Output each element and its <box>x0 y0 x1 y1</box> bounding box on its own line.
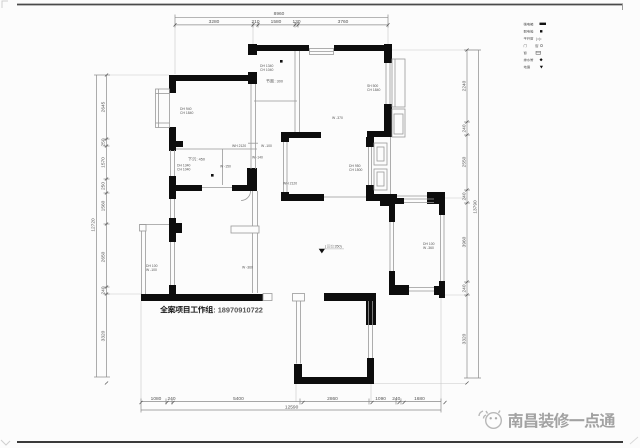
svg-text:CH 1840: CH 1840 <box>180 111 193 115</box>
svg-text:240: 240 <box>462 192 468 200</box>
svg-text:CH 1040: CH 1040 <box>177 168 190 172</box>
svg-text:250: 250 <box>101 182 107 190</box>
svg-text:1560: 1560 <box>101 200 107 211</box>
svg-text:3320: 3320 <box>462 333 468 344</box>
svg-text:2240: 2240 <box>462 80 468 91</box>
svg-text:W -370: W -370 <box>332 116 343 120</box>
svg-text:1090: 1090 <box>375 396 386 402</box>
svg-text:3320: 3320 <box>101 330 107 341</box>
svg-text:W -100: W -100 <box>261 144 272 148</box>
svg-text:12590: 12590 <box>285 404 299 410</box>
svg-text:1580: 1580 <box>271 19 282 25</box>
svg-text:3760: 3760 <box>338 19 349 25</box>
svg-text:1680: 1680 <box>414 396 425 402</box>
svg-text:8960: 8960 <box>274 11 285 17</box>
svg-text:WH 2120: WH 2120 <box>232 144 246 148</box>
svg-text:3960: 3960 <box>462 236 468 247</box>
svg-text:2860: 2860 <box>327 396 338 402</box>
svg-text:WH 2120: WH 2120 <box>283 182 297 186</box>
svg-text:: 300: : 300 <box>275 80 283 84</box>
svg-text:12720: 12720 <box>91 218 97 232</box>
svg-text:2645: 2645 <box>101 101 107 112</box>
svg-text:240: 240 <box>462 124 468 132</box>
svg-text:CH 1040: CH 1040 <box>260 68 273 72</box>
svg-text:13790: 13790 <box>473 200 479 214</box>
svg-text:W -360: W -360 <box>242 266 253 270</box>
svg-text:W -360: W -360 <box>423 246 434 250</box>
svg-text:350): 350) <box>335 245 342 249</box>
svg-text:240: 240 <box>462 284 468 292</box>
svg-text:5400: 5400 <box>233 396 244 402</box>
svg-text:130: 130 <box>292 19 300 25</box>
svg-text:: 18970910722: : 18970910722 <box>213 306 263 315</box>
svg-text:W -140: W -140 <box>252 156 263 160</box>
svg-text:2650: 2650 <box>101 251 107 262</box>
svg-text:CH 1840: CH 1840 <box>367 88 380 92</box>
svg-text:(=)•: (=)• <box>536 37 542 41</box>
svg-text:W -100: W -100 <box>146 268 157 272</box>
svg-text:1570: 1570 <box>101 157 107 168</box>
svg-text:: 450: : 450 <box>197 158 205 162</box>
svg-text:2550: 2550 <box>462 156 468 167</box>
svg-text:3280: 3280 <box>209 19 220 25</box>
svg-text:W -150: W -150 <box>220 165 231 169</box>
svg-text:1080: 1080 <box>151 396 162 402</box>
svg-text:240: 240 <box>392 396 400 402</box>
svg-text:CH 1500: CH 1500 <box>349 168 362 172</box>
